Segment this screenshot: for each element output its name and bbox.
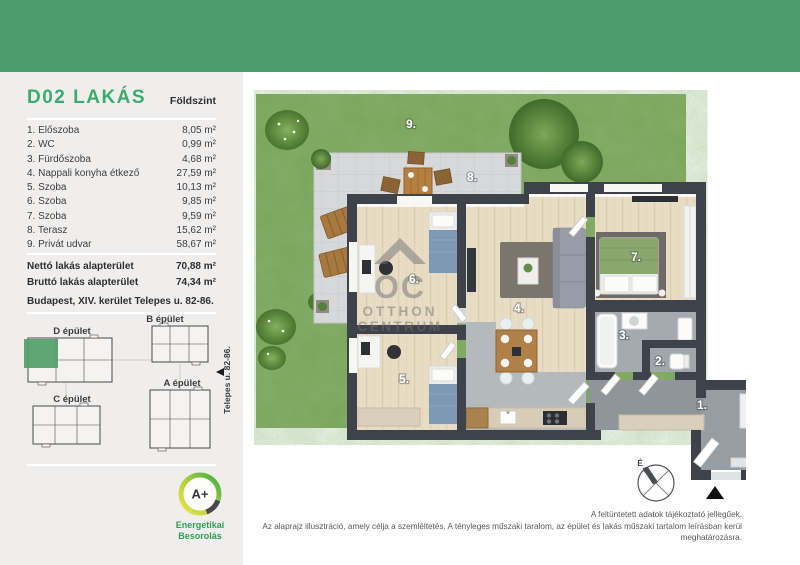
street-label: Telepes u. 82-86. <box>222 346 232 413</box>
energy-rating: A+ <box>192 487 209 502</box>
building-b <box>152 323 208 365</box>
header-bar <box>0 0 800 72</box>
room-row: 4. Nappali konyha étkező27,59 m² <box>27 167 216 181</box>
floor-plan: OC OTTHON CENTRUM 9. 8. 6. 5. 4. 7. 3. 2… <box>254 90 746 510</box>
room-row: 3. Fürdőszoba4,68 m² <box>27 153 216 167</box>
room-row: 9. Privát udvar58,67 m² <box>27 238 216 252</box>
room-row: 1. Előszoba8,05 m² <box>27 124 216 138</box>
compass: É <box>637 459 674 501</box>
label-room6: 6. <box>409 272 419 286</box>
terrace-tree <box>311 149 331 169</box>
title-row: D02 LAKÁS Földszint <box>27 87 216 109</box>
watermark-line1: OTTHON <box>363 304 438 319</box>
totals-list: Nettó lakás alapterület70,88 m²Bruttó la… <box>27 259 216 290</box>
room-list: 1. Előszoba8,05 m²2. WC0,99 m²3. Fürdősz… <box>27 124 216 253</box>
room-row: 8. Terasz15,62 m² <box>27 224 216 238</box>
divider <box>27 253 216 255</box>
building-d-label: D épület <box>53 326 91 337</box>
label-bathroom: 3. <box>619 328 629 342</box>
label-room5: 5. <box>399 372 409 386</box>
address: Budapest, XIV. kerület Telepes u. 82-86. <box>27 296 216 307</box>
room-row: 7. Szoba9,59 m² <box>27 210 216 224</box>
room-row: 2. WC0,99 m² <box>27 138 216 152</box>
label-living: 4. <box>514 301 524 315</box>
building-c-label: C épület <box>53 394 91 405</box>
highlighted-apartment <box>24 339 58 368</box>
kitchen-counter <box>466 408 586 428</box>
wc-fixtures <box>670 354 689 369</box>
building-a-label: A épület <box>163 378 201 389</box>
watermark-line2: CENTRUM <box>358 319 443 334</box>
entrance-arrow <box>706 486 724 499</box>
label-garden: 9. <box>406 117 416 131</box>
total-row: Bruttó lakás alapterület74,34 m² <box>27 275 216 291</box>
total-row: Nettó lakás alapterület70,88 m² <box>27 259 216 275</box>
divider <box>27 118 216 120</box>
room-row: 5. Szoba10,13 m² <box>27 181 216 195</box>
label-terrace: 8. <box>467 170 477 184</box>
building-c <box>33 403 100 447</box>
building-a <box>150 387 210 451</box>
disclaimer-line-1: A feltüntetett adatok tájékoztató jelleg… <box>222 509 742 521</box>
apartment-title: D02 LAKÁS <box>27 87 146 109</box>
disclaimer-line-2: Az alaprajz illusztráció, amely célja a … <box>222 521 742 544</box>
site-plan: B épület D épület A épület C épület Tele… <box>20 314 235 462</box>
terrace-table <box>404 168 432 195</box>
energy-ring: A+ <box>177 471 223 517</box>
sidebar: D02 LAKÁS Földszint 1. Előszoba8,05 m²2.… <box>0 72 243 565</box>
footer-disclaimer: A feltüntetett adatok tájékoztató jelleg… <box>222 509 742 544</box>
label-room7: 7. <box>631 250 641 264</box>
page: D02 LAKÁS Földszint 1. Előszoba8,05 m²2.… <box>0 0 800 565</box>
label-wc: 2. <box>655 354 665 368</box>
floor-label: Földszint <box>170 95 216 109</box>
compass-north-label: É <box>637 459 643 468</box>
divider <box>27 464 216 466</box>
room-row: 6. Szoba9,85 m² <box>27 195 216 209</box>
bush <box>265 110 309 150</box>
tree <box>561 141 603 183</box>
building-b-label: B épület <box>146 314 184 325</box>
label-entry: 1. <box>697 398 707 412</box>
